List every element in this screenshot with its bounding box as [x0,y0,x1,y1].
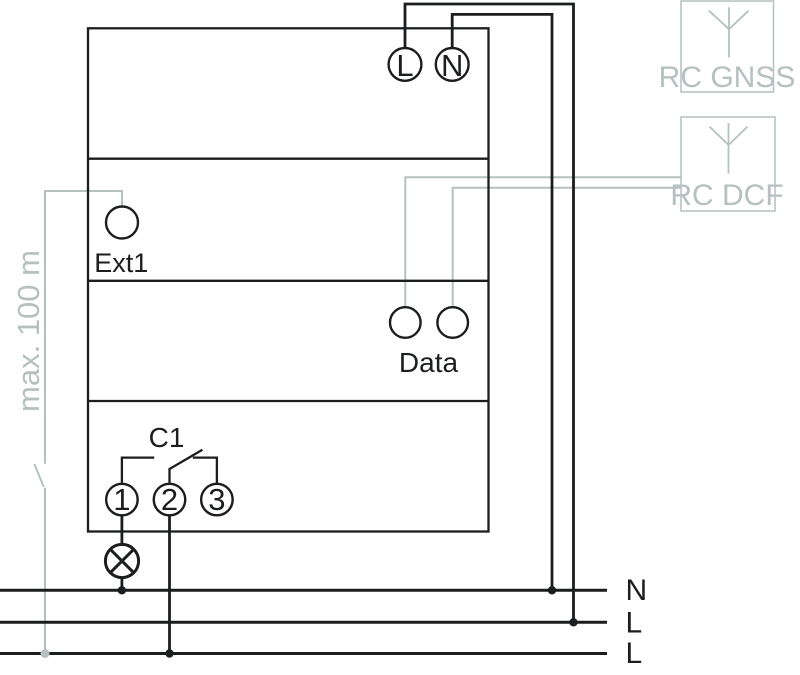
svg-text:max. 100 m: max. 100 m [11,250,46,412]
svg-text:N: N [441,48,463,83]
svg-text:RC DCF: RC DCF [670,179,783,212]
svg-text:N: N [626,574,648,607]
svg-text:L: L [626,637,643,670]
svg-text:L: L [626,606,643,639]
svg-text:1: 1 [113,482,130,517]
svg-text:C1: C1 [149,422,185,453]
svg-text:3: 3 [208,482,225,517]
svg-text:Ext1: Ext1 [94,248,148,278]
svg-text:L: L [396,48,413,83]
svg-text:Data: Data [399,347,459,378]
svg-text:2: 2 [161,482,178,517]
svg-text:RC GNSS: RC GNSS [659,61,796,94]
